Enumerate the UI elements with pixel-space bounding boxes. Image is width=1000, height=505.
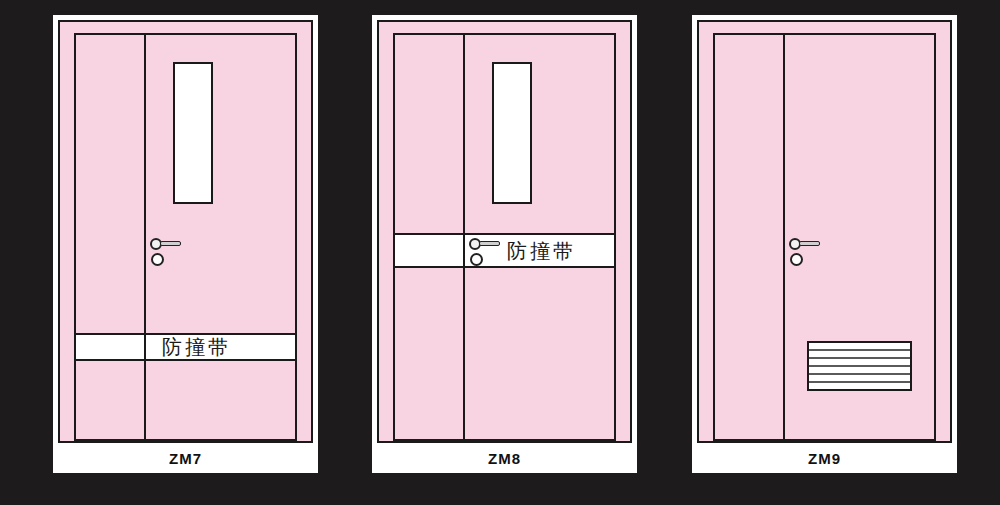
anti-collision-band-label: 防撞带 [507,241,576,261]
door-label: ZM7 [53,450,318,467]
vent-louver [807,341,912,391]
handle-lever-icon [799,241,820,246]
door-card-zm9: ZM9 [692,15,957,473]
lock-cylinder-icon [151,253,164,266]
louver-slat-line [809,373,910,375]
door-leaves: 防撞带 [393,33,616,441]
anti-collision-band: 防撞带 [395,233,614,268]
handle-lever-icon [479,241,500,246]
leaf-division-line [783,35,785,439]
door-leaves [713,33,936,441]
door-card-zm8: 防撞带 ZM8 [372,15,637,473]
anti-collision-band: 防撞带 [76,333,295,361]
door-frame: 防撞带 [58,20,313,443]
door-leaves: 防撞带 [74,33,297,441]
door-window [173,62,213,204]
door-card-zm7: 防撞带 ZM7 [53,15,318,473]
door-frame: 防撞带 [377,20,632,443]
handle-lever-icon [160,241,181,246]
door-label: ZM9 [692,450,957,467]
louver-slat-line [809,357,910,359]
louver-slat-line [809,349,910,351]
door-label: ZM8 [372,450,637,467]
door-frame [697,20,952,443]
louver-slat-line [809,365,910,367]
louver-slat-line [809,381,910,383]
leaf-division-line [144,35,146,439]
leaf-division-line [463,35,465,439]
anti-collision-band-label: 防撞带 [162,337,231,357]
lock-cylinder-icon [470,253,483,266]
door-window [492,62,532,204]
diagram-stage: 防撞带 ZM7 防撞带 [0,0,1000,505]
lock-cylinder-icon [790,253,803,266]
